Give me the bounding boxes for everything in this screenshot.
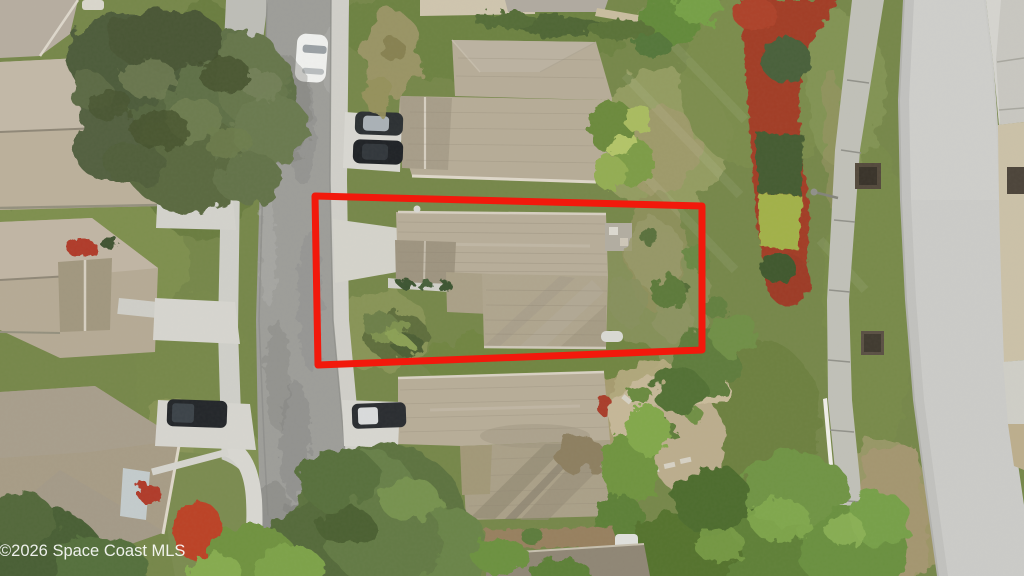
- svg-text:©2026 Space Coast MLS: ©2026 Space Coast MLS: [0, 542, 185, 560]
